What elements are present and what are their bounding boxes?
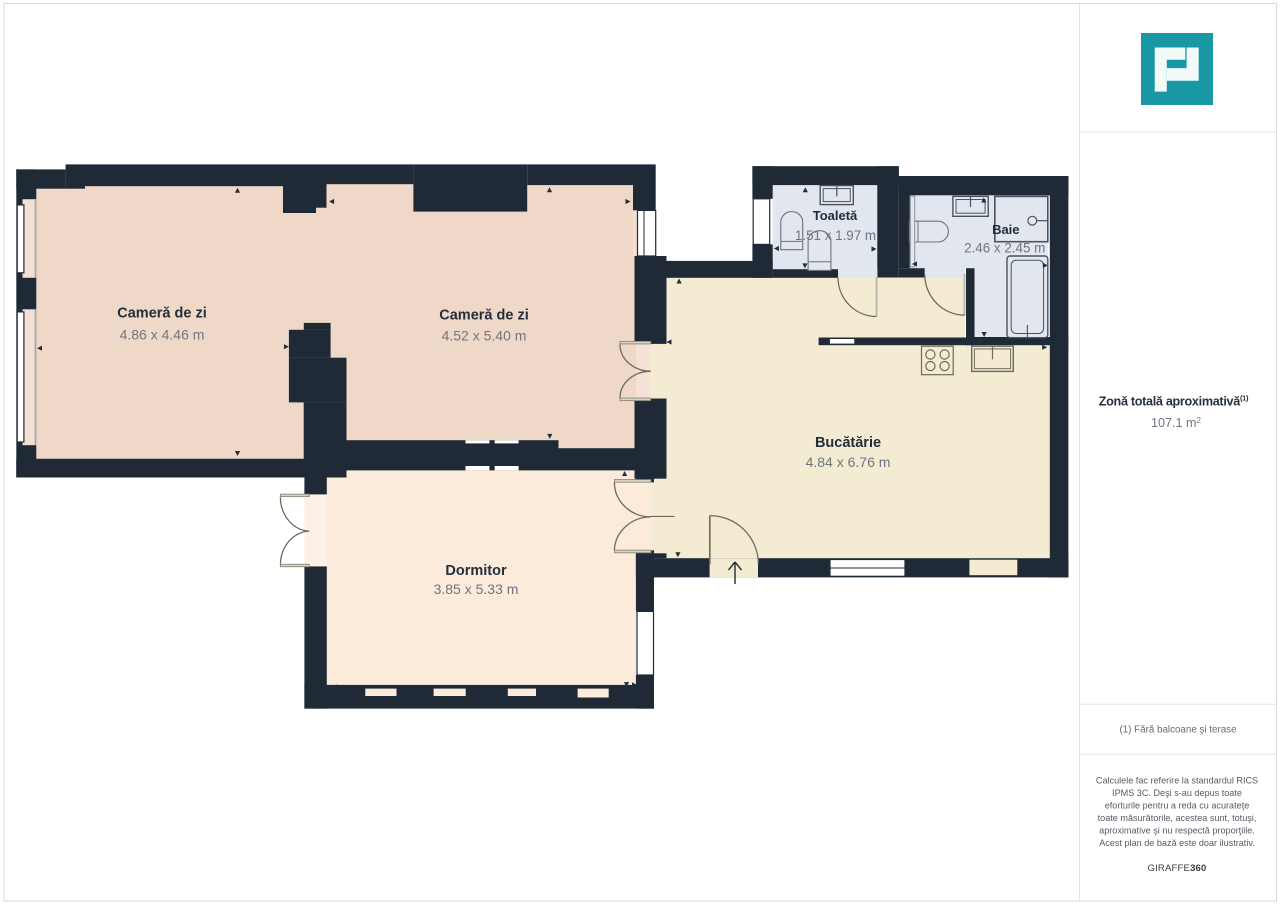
svg-text:toate măsurătorile, acestea su: toate măsurătorile, acestea sunt, totuşi…	[1098, 813, 1257, 823]
svg-text:Cameră de zi: Cameră de zi	[117, 306, 206, 322]
svg-text:Dormitor: Dormitor	[445, 563, 507, 579]
svg-text:Bucătărie: Bucătărie	[815, 435, 881, 451]
svg-text:4.84 x 6.76 m: 4.84 x 6.76 m	[806, 454, 891, 470]
svg-text:4.52 x 5.40 m: 4.52 x 5.40 m	[442, 328, 527, 344]
svg-text:4.86 x 4.46 m: 4.86 x 4.46 m	[120, 327, 205, 343]
svg-text:Calculele fac referire la stan: Calculele fac referire la standardul RIC…	[1096, 776, 1258, 786]
svg-text:Zonă totală aproximativă(1): Zonă totală aproximativă(1)	[1099, 394, 1249, 409]
svg-text:3.85 x 5.33 m: 3.85 x 5.33 m	[434, 581, 519, 597]
svg-text:eforturile pentru a reda cu ac: eforturile pentru a reda cu acurateţe	[1105, 801, 1250, 811]
svg-text:aproximative şi nu respectă pr: aproximative şi nu respectă proporţiile.	[1099, 826, 1255, 836]
svg-text:Toaletă: Toaletă	[813, 208, 858, 223]
svg-text:IPMS 3C. Deşi s-au depus toate: IPMS 3C. Deşi s-au depus toate	[1112, 788, 1242, 798]
svg-text:2.46 x 2.45 m: 2.46 x 2.45 m	[964, 241, 1045, 256]
svg-text:(1) Fără balcoane şi terase: (1) Fără balcoane şi terase	[1119, 725, 1237, 736]
svg-text:Acest plan de bază este doar i: Acest plan de bază este doar ilustrativ.	[1099, 838, 1255, 848]
svg-text:Baie: Baie	[992, 222, 1019, 237]
svg-text:107.1 m2: 107.1 m2	[1151, 416, 1202, 430]
svg-text:1.51 x 1.97 m: 1.51 x 1.97 m	[795, 228, 876, 243]
svg-text:Cameră de zi: Cameră de zi	[439, 308, 528, 324]
svg-text:GIRAFFE360: GIRAFFE360	[1147, 863, 1206, 874]
